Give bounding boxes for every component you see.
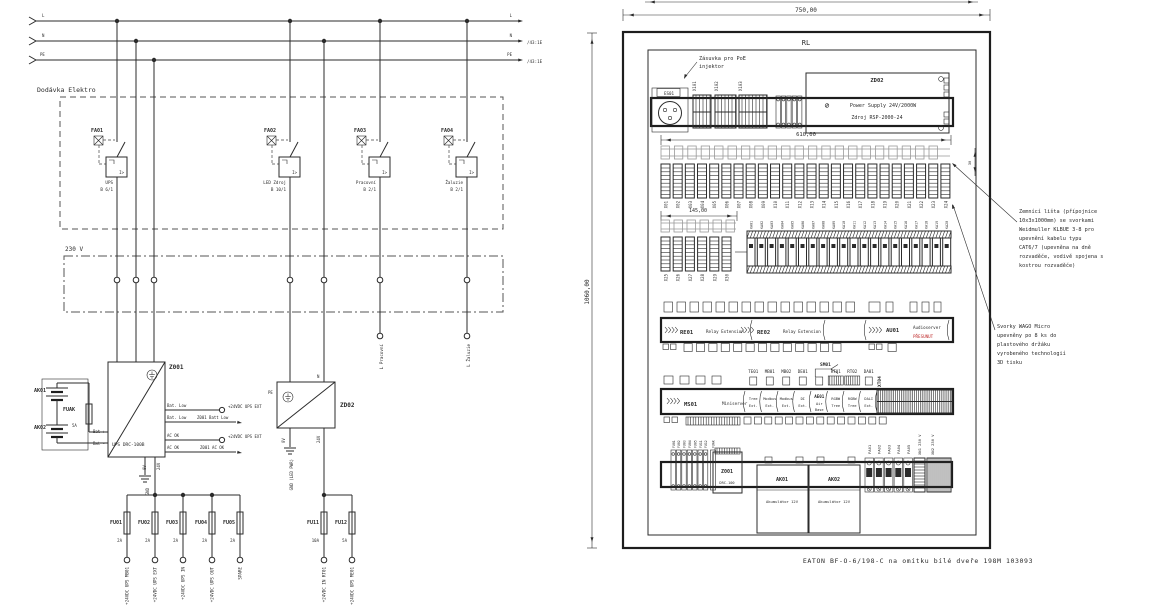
fuse-id: FU04: [195, 520, 207, 526]
trip-symbol: I>: [469, 170, 474, 175]
relay-module: [922, 238, 930, 266]
wire-line: [853, 266, 856, 273]
rail-clip: [902, 146, 910, 159]
wire-label: +24VDC IN RT01: [322, 567, 327, 603]
breaker-id: FA04: [441, 128, 453, 134]
component-outline: [664, 376, 673, 384]
wire-line: [808, 266, 811, 273]
wire-line: [750, 266, 753, 273]
relay-led: [831, 244, 835, 248]
wire-label: +24VDC UPS OUT: [210, 567, 215, 603]
wire-line: [843, 266, 846, 273]
re2-id: RE02: [757, 330, 770, 336]
wire-line: [757, 266, 760, 273]
arrow-head: [968, 1, 973, 4]
wire-line: [840, 231, 843, 238]
battery-fuse-rating: 5A: [72, 423, 77, 428]
terminal-label: X16: [846, 200, 851, 208]
relay-module: [829, 238, 837, 266]
component-outline: [680, 376, 689, 384]
re2-name: Relay Extension: [783, 329, 821, 334]
ledpsu-id: ZD02: [340, 402, 355, 409]
terminal-circle: [349, 557, 355, 563]
wire-line: [824, 231, 827, 238]
ups-bat-low: Bat. Low: [167, 403, 187, 408]
wire-line: [891, 231, 894, 238]
module-separator: [864, 320, 866, 340]
annotation1-line: Weidmuller KLBUE 3-8 pro: [1019, 227, 1094, 233]
breaker-id: FA03: [354, 128, 366, 134]
connector-tooth: [807, 302, 816, 312]
micro-fuse-label: FU03: [683, 440, 687, 448]
connector-tooth: [783, 344, 791, 352]
rail-clip: [726, 220, 734, 232]
module-separator: [760, 391, 762, 412]
micro-fuse: [687, 450, 691, 490]
wire-line: [885, 266, 888, 273]
wire-line: [945, 231, 948, 238]
wire-line: [910, 266, 913, 273]
wire-line: [894, 231, 897, 238]
component-outline: [750, 377, 757, 385]
wire-line: [936, 266, 939, 273]
fuse-rating: 10A: [312, 538, 320, 543]
module-name: RGBW: [848, 397, 857, 401]
bus-label-pe-right: PE: [507, 52, 512, 57]
wire-line: [837, 231, 840, 238]
terminal-label: X19: [883, 200, 888, 208]
trip-symbol: I>: [119, 170, 124, 175]
panel-psu-line1: Power Supply 24V/2000W: [850, 103, 917, 109]
relay-label: KA17: [914, 221, 918, 229]
terminal-circle: [180, 557, 186, 563]
wiring-schematic: L N PE L N PE /43:1E /43:1E Dodávka Elek…: [34, 13, 543, 495]
connector-tooth: [786, 417, 793, 424]
rail-clip: [741, 146, 749, 159]
terminal-label: X21: [907, 200, 912, 208]
terminal-circle: [663, 108, 666, 111]
fuse-id: FU02: [138, 520, 150, 526]
rail-clip: [661, 146, 669, 159]
chevron-icon: [872, 327, 874, 333]
terminal-block: [698, 237, 707, 271]
relay-module: [788, 238, 796, 266]
terminal-circle: [321, 557, 327, 563]
wire-line: [760, 231, 763, 238]
component-outline: [715, 448, 740, 454]
wire-line: [808, 231, 811, 238]
terminal-label: X10: [773, 200, 778, 208]
wire-line: [875, 266, 878, 273]
rail-clip: [701, 146, 709, 159]
wire-line: [290, 142, 298, 157]
wire-line: [821, 231, 824, 238]
relay-led: [801, 244, 805, 248]
terminal-label: X26: [676, 273, 681, 281]
relay-led: [821, 244, 825, 248]
component-outline: [888, 344, 896, 352]
annotation1-line: upevnění kabelu typu: [1019, 235, 1081, 242]
wire-line: [897, 266, 900, 273]
terminal-circle: [133, 277, 139, 283]
component-outline: [663, 344, 669, 350]
relay-label: KA06: [801, 221, 805, 229]
wire-line: [833, 266, 836, 273]
relay-led: [852, 244, 856, 248]
fuak-label: FUAK: [711, 440, 715, 448]
terminal-label: X13: [810, 200, 815, 208]
breaker-toggle: [886, 468, 892, 477]
terminal-circle: [694, 453, 697, 456]
component-outline: [696, 376, 705, 384]
terminal-block: [831, 164, 840, 198]
battery-ak1: AK01: [34, 388, 46, 394]
component-outline: [664, 417, 670, 423]
rail-clip: [768, 146, 776, 159]
module-top-label: MB02: [781, 369, 792, 374]
terminal-circle: [677, 453, 680, 456]
micro-fuse: [676, 450, 680, 490]
rail-clip: [755, 146, 763, 159]
wire-line: [933, 266, 936, 273]
ledpsu-pe: PE: [268, 390, 273, 395]
breaker-rating: B 2/1: [450, 187, 463, 192]
chevron-icon: [748, 327, 750, 333]
wire-line: [782, 266, 785, 273]
module-separator: [826, 391, 828, 412]
component-outline: [877, 344, 883, 350]
wire-line: [859, 266, 862, 273]
connector-tooth: [796, 344, 804, 352]
wire-line: [929, 266, 932, 273]
terminal-block: [746, 164, 755, 198]
bus-label-n-right: N: [510, 33, 513, 38]
relay-label: KA20: [945, 221, 949, 229]
module-separator: [776, 391, 778, 412]
ledpsu-n: N: [317, 374, 320, 379]
wire-line: [805, 231, 808, 238]
terminal-block: [710, 164, 719, 198]
terminal-circle: [152, 557, 158, 563]
relay-label: KA01: [750, 221, 754, 229]
wire-line: [801, 231, 804, 238]
relay-label: KA03: [770, 221, 774, 229]
annotation1-line: 10x3x1000mm) se svorkami: [1019, 218, 1094, 224]
breaker-rating: B 6/1: [100, 187, 113, 192]
wire-line: [750, 231, 753, 238]
chevron-icon: [751, 327, 753, 333]
terminal-block: [734, 164, 743, 198]
breaker-id: FA02: [264, 128, 276, 134]
wire-line: [801, 266, 804, 273]
breaker-id: FA01: [91, 128, 103, 134]
terminal-block: [795, 164, 804, 198]
wire-line: [942, 231, 945, 238]
terminal-label: X24: [943, 200, 948, 208]
breaker-name: Pracovní: [356, 180, 377, 185]
wire-line: [945, 266, 948, 273]
terminal-block: [722, 237, 731, 271]
module-separator: [947, 320, 949, 340]
wire-line: [467, 142, 475, 157]
module-name: Ext.: [749, 404, 758, 408]
relay-module: [809, 238, 817, 266]
terminal-block: [892, 164, 901, 198]
micro-fuse: [698, 450, 702, 490]
rail-clip: [661, 220, 669, 232]
terminal-circle: [464, 333, 470, 339]
voltage-box-title: 230 V: [65, 246, 83, 253]
relay-label: KA16: [904, 221, 908, 229]
wire-line: [773, 231, 776, 238]
terminal-block: [661, 164, 670, 198]
component-outline: [865, 377, 872, 385]
relay-led: [904, 244, 908, 248]
wire-label: SPARE: [238, 567, 243, 580]
connector-tooth: [721, 344, 729, 352]
wire-line: [805, 266, 808, 273]
wire-line: [917, 231, 920, 238]
terminal-label: X18: [870, 200, 875, 208]
terminal-label: X14: [822, 200, 827, 208]
connector-tooth: [709, 344, 717, 352]
panel-ak2: AK02: [828, 477, 840, 483]
rail-clip: [674, 220, 682, 232]
wire-line: [785, 266, 788, 273]
au-note: PŘESUNUT: [913, 334, 934, 339]
wire-line: [929, 231, 932, 238]
connector-tooth: [869, 417, 876, 424]
wire-line: [939, 266, 942, 273]
output-zaluzie: L Žaluzie: [466, 344, 471, 367]
terminal-block: [856, 164, 865, 198]
terminal-block: [758, 164, 767, 198]
relay-label: KA05: [791, 221, 795, 229]
connector-tooth: [775, 417, 782, 424]
terminal-label: X30: [725, 273, 730, 281]
relay-led: [842, 244, 846, 248]
relay-led: [811, 244, 815, 248]
wire-line: [811, 231, 814, 238]
connector-tooth: [808, 344, 816, 352]
module-top-label: MB01: [765, 369, 776, 374]
trip-symbol: I>: [382, 170, 387, 175]
module-name: Tree: [848, 404, 857, 408]
connector-tooth: [664, 302, 673, 312]
wire-line: [939, 231, 942, 238]
ups-id: Z001: [169, 364, 184, 371]
micro-fuse-label: FU05: [693, 440, 697, 448]
fuse-id: FU11: [307, 520, 319, 526]
relay-module: [757, 238, 765, 266]
relay-module: [850, 238, 858, 266]
trip-symbol: I>: [292, 170, 297, 175]
wire-line: [869, 231, 872, 238]
wire-line: [862, 266, 865, 273]
component-outline: [799, 377, 806, 385]
module-top-label: RT02: [847, 369, 858, 374]
rail-clip: [700, 220, 708, 232]
rail-clip: [889, 146, 897, 159]
terminal-label: X09: [761, 200, 766, 208]
terminal-label: X06: [724, 200, 729, 208]
bus-label-l-right: L: [510, 13, 513, 18]
rail-clip: [916, 146, 924, 159]
wire-line: [875, 231, 878, 238]
connector-tooth: [879, 417, 886, 424]
terminal-circle: [151, 277, 157, 283]
arrow-head: [666, 215, 671, 218]
terminal-block: [722, 164, 731, 198]
module-separator: [823, 320, 825, 340]
arrow-head: [666, 139, 671, 142]
arrow-head: [591, 39, 594, 44]
terminal-circle: [287, 277, 293, 283]
terminal-label: X08: [749, 200, 754, 208]
wire-line: [904, 266, 907, 273]
wire-line: [910, 231, 913, 238]
module-name: Modbus: [763, 397, 776, 401]
connector-tooth: [758, 344, 766, 352]
rail-clip: [875, 146, 883, 159]
relay-led: [873, 244, 877, 248]
module-name: Ext.: [864, 404, 873, 408]
bus-ref-n: /43:1E: [527, 40, 543, 45]
annotation1-line: CAT6/7 (upevněna na dně: [1019, 244, 1091, 251]
wire-line: [901, 266, 904, 273]
component-outline: [944, 78, 949, 83]
symbol-path: [282, 160, 287, 164]
chevron-icon: [675, 327, 677, 333]
component-outline: [783, 377, 790, 385]
fuse-rating: 2A: [117, 538, 122, 543]
terminal-block: [880, 164, 889, 198]
wire-line: [885, 231, 888, 238]
micro-fuse: [693, 450, 697, 490]
bus-label-pe: PE: [40, 52, 45, 57]
terminal-circle: [939, 77, 944, 82]
micro-fuse-label: FU02: [677, 440, 681, 448]
wire-line: [763, 231, 766, 238]
fuse-rating: 2A: [145, 538, 150, 543]
component-outline: [816, 377, 823, 385]
relay-label: KA08: [822, 221, 826, 229]
relay-module: [912, 238, 920, 266]
schematic-and-panel-drawing: L N PE L N PE /43:1E /43:1E Dodávka Elek…: [0, 0, 1166, 615]
component-outline: [910, 302, 917, 312]
wire-line: [865, 231, 868, 238]
wire-line: [869, 266, 872, 273]
terminal-circle: [219, 407, 224, 412]
wire-line: [814, 266, 817, 273]
connector-tooth: [781, 302, 790, 312]
arrow-head: [952, 204, 955, 209]
connector-tooth: [677, 302, 686, 312]
wire-line: [872, 266, 875, 273]
wire-line: [760, 266, 763, 273]
chevron-icon: [879, 327, 881, 333]
connector-tooth: [744, 417, 751, 424]
terminal-label: X25: [664, 273, 669, 281]
wire-line: [785, 231, 788, 238]
micro-fuse-label: FU11: [699, 440, 703, 448]
connector-tooth: [771, 344, 779, 352]
terminal-circle: [209, 557, 215, 563]
terminal-block: [771, 164, 780, 198]
module-name: Ext.: [765, 404, 774, 408]
panel-breaker-label: FA02: [877, 445, 882, 454]
relay-label: KA04: [780, 221, 784, 229]
wire-line: [933, 231, 936, 238]
relay-module: [902, 238, 910, 266]
wire-line: [798, 266, 801, 273]
drawing-geometry: FA01I>UPSB 6/1FA02I>LED ZdrojB 10/1FA03I…: [29, 1, 1017, 605]
relay-led: [790, 244, 794, 248]
relay-label: KA09: [832, 221, 836, 229]
re1-id: RE01: [680, 330, 694, 336]
terminal-block: [783, 164, 792, 198]
component-outline: [869, 302, 880, 312]
component-outline: [922, 302, 929, 312]
wire-line: [878, 231, 881, 238]
wire-line: [891, 266, 894, 273]
connector-tooth: [696, 344, 704, 352]
re1-name: Relay Extension: [706, 329, 744, 334]
annotation-leader: [953, 164, 1017, 222]
relay-module: [778, 238, 786, 266]
panel-ak1-name: Akumulátor 12V: [766, 499, 799, 504]
connector-tooth: [846, 302, 855, 312]
wire-line: [792, 231, 795, 238]
wire-line: [789, 266, 792, 273]
bus-ref-pe: /43:1E: [527, 59, 543, 64]
terminal-label: X28: [700, 273, 705, 281]
wire-line: [913, 266, 916, 273]
fuse-rating: 2A: [173, 538, 178, 543]
terminal-block: [698, 164, 707, 198]
relay-led: [780, 244, 784, 248]
terminal-circle: [688, 453, 691, 456]
component-outline: [712, 376, 721, 384]
wire-line: [776, 231, 779, 238]
relay-module: [891, 238, 899, 266]
fuse-rating: 5A: [342, 538, 347, 543]
component-outline: [869, 344, 875, 350]
terminal-circle: [114, 277, 120, 283]
au-name: Audioserver: [913, 325, 941, 330]
ledpsu-24v: 24V: [316, 435, 321, 443]
poe-note-line1: Zásuvka pro PoE: [699, 55, 746, 62]
panel-psu-line2: Zdroj RSP-2000-24: [851, 115, 902, 121]
connector-tooth: [734, 344, 742, 352]
relay-module: [943, 238, 951, 266]
terminal-label: X04: [700, 200, 705, 208]
terminal-circle: [699, 453, 702, 456]
output-pracovni: L Pracovní: [379, 344, 384, 370]
chevron-icon: [677, 398, 679, 404]
relay-led: [945, 244, 949, 248]
wire-line: [795, 266, 798, 273]
chevron-icon: [674, 398, 676, 404]
wire-line: [907, 266, 910, 273]
wire-line: [888, 231, 891, 238]
terminal-label: X15: [834, 200, 839, 208]
terminal-circle: [237, 557, 243, 563]
rail-clip: [822, 146, 830, 159]
connector-tooth: [827, 417, 834, 424]
wire-line: [753, 266, 756, 273]
terminal-circle: [668, 116, 671, 119]
